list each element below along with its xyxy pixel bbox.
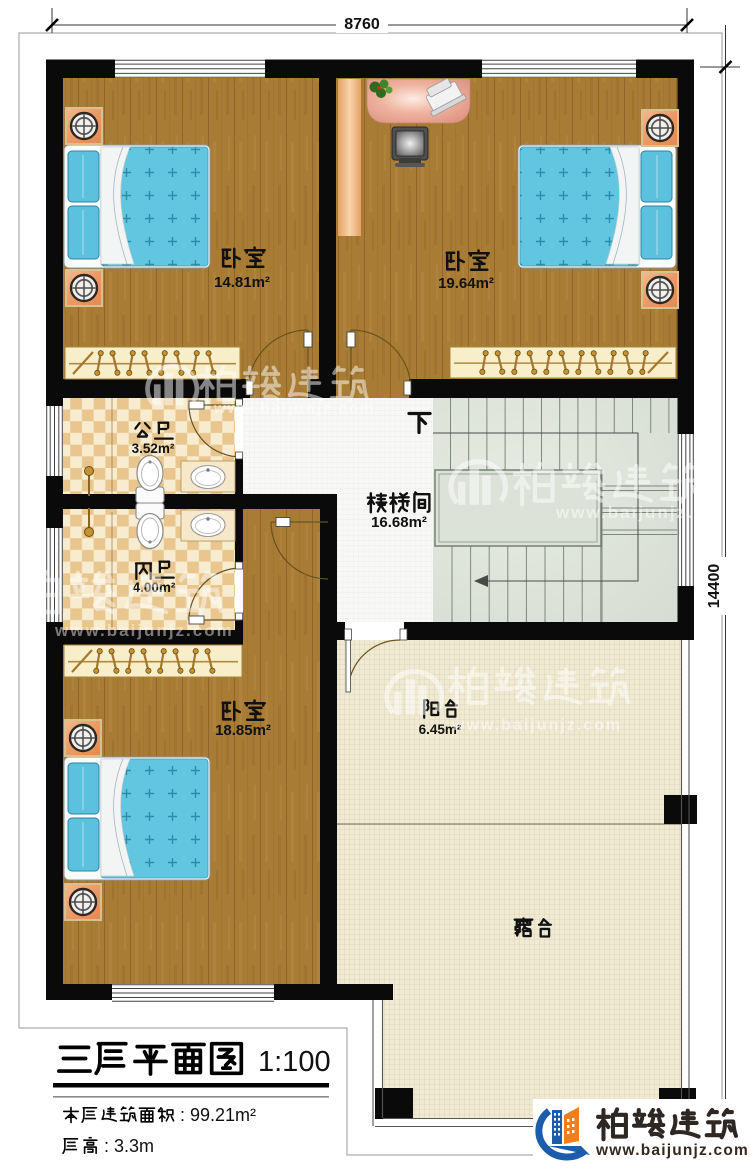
svg-text:14400: 14400 [706, 564, 723, 609]
svg-text:www.baijunjz.com: www.baijunjz.com [595, 1142, 749, 1159]
svg-text:: 99.21m²: : 99.21m² [180, 1105, 256, 1125]
svg-text:8760: 8760 [344, 16, 380, 33]
svg-text:www.baijunjz.com: www.baijunjz.com [451, 717, 622, 734]
svg-text:1:100: 1:100 [258, 1046, 331, 1078]
svg-text:www.baijunjz.com: www.baijunjz.com [213, 400, 375, 417]
svg-text:www.baijunjz.com: www.baijunjz.com [54, 621, 234, 640]
svg-text:www.baijunjz.com: www.baijunjz.com [555, 503, 735, 522]
svg-text:: 3.3m: : 3.3m [104, 1136, 154, 1156]
